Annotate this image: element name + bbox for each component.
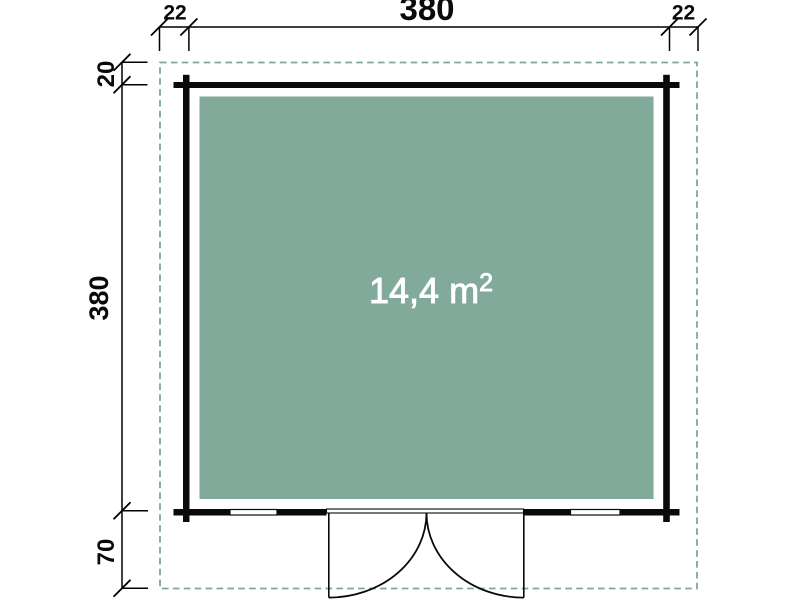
svg-text:20: 20 bbox=[93, 61, 120, 88]
svg-text:14,4 m2: 14,4 m2 bbox=[369, 269, 493, 311]
svg-text:380: 380 bbox=[399, 0, 454, 27]
svg-text:22: 22 bbox=[163, 2, 186, 25]
svg-text:380: 380 bbox=[84, 275, 114, 320]
svg-text:22: 22 bbox=[672, 2, 695, 25]
svg-text:70: 70 bbox=[93, 539, 120, 566]
